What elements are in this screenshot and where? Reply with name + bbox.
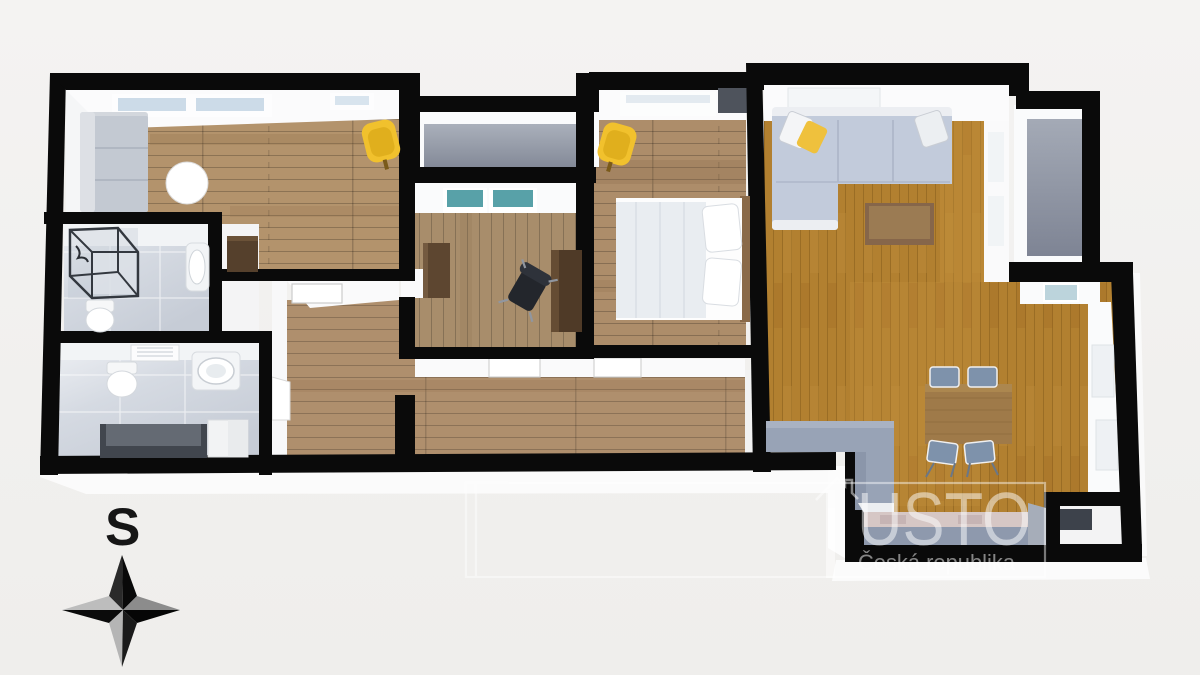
svg-text:USTO: USTO — [857, 477, 1031, 561]
svg-text:Česká republika: Česká republika — [858, 550, 1016, 575]
svg-text:S: S — [105, 498, 140, 557]
